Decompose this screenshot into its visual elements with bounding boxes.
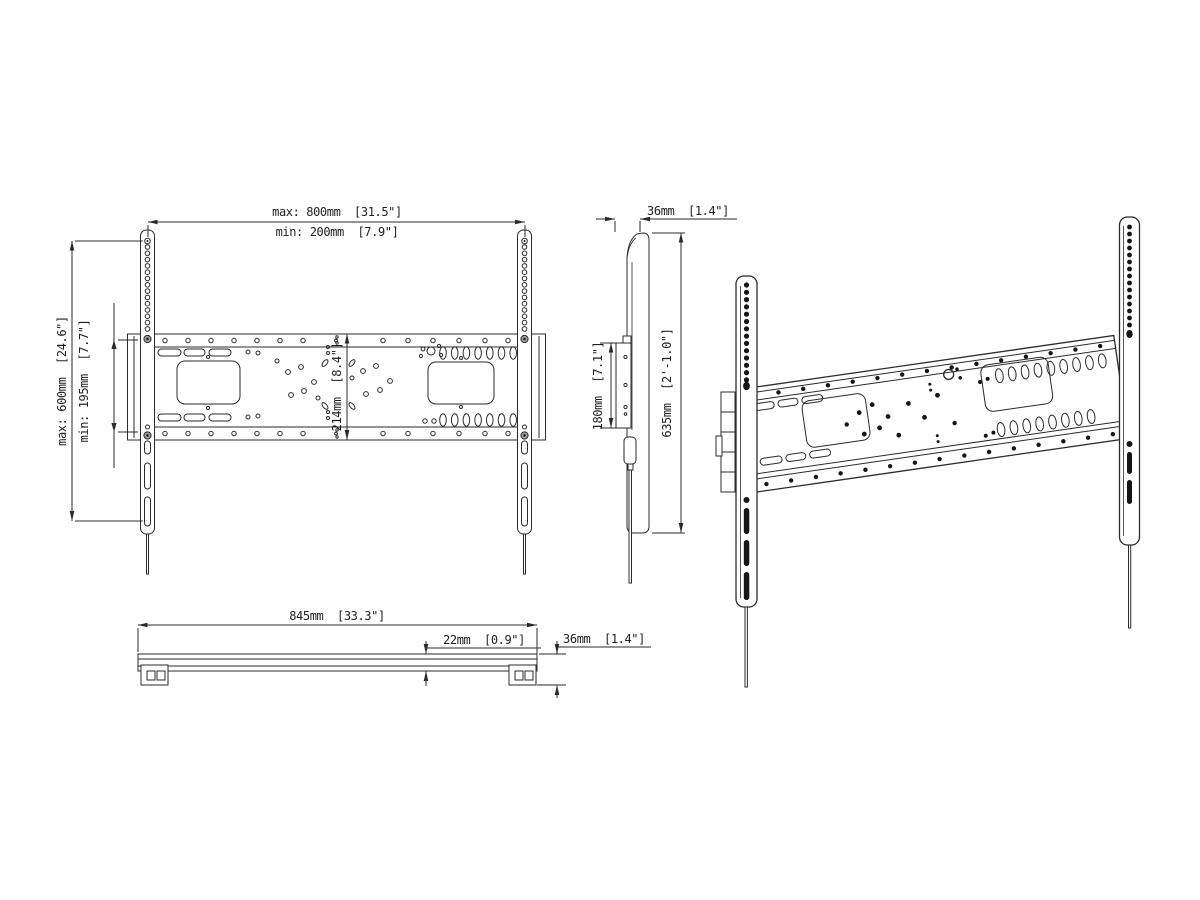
spacer-block-side [624,437,636,464]
dim-total-depth: 36mm [1.4"] [563,632,645,646]
front-view: max: 800mm [31.5"] min: 200mm [7.9"] max… [55,205,546,574]
safety-strap-left-perspective [745,607,747,687]
wall-mount-technical-drawing: max: 800mm [31.5"] min: 200mm [7.9"] max… [0,0,1200,900]
side-view: 36mm [1.4"] 180mm [7.1"] 635mm [2'-1.0"] [591,204,737,583]
safety-strap-right [524,534,526,574]
safety-strap-right-perspective [1129,545,1131,628]
foot-right-bottom [509,665,536,685]
tv-rail-left-perspective [736,276,757,687]
dim-width-max: max: 800mm [31.5"] [272,205,402,219]
dim-width-min: min: 200mm [7.9"] [276,225,399,239]
dim-plate-thickness: 22mm [0.9"] [443,633,525,647]
dim-height-min: min: 195mm [7.7"] [77,320,91,443]
bottom-view: 845mm [33.3"] 22mm [0.9"] 36mm [1.4"] [138,609,651,698]
tv-rail-right-perspective [1120,217,1140,628]
dim-total-height: 635mm [2'-1.0"] [660,328,674,437]
dim-height-max: max: 600mm [24.6"] [55,316,69,446]
side-dimensions: 36mm [1.4"] 180mm [7.1"] 635mm [2'-1.0"] [591,204,737,533]
technical-drawing-page: max: 800mm [31.5"] min: 200mm [7.9"] max… [0,0,1200,900]
wall-plate-perspective [740,335,1129,492]
dim-plate-height: 180mm [7.1"] [591,342,605,431]
wall-plate-bottom [138,654,537,671]
safety-strap-side [629,470,632,583]
safety-strap-left [147,534,149,574]
foot-left-bottom [141,665,168,685]
dim-rail-span: 214mm [8.4"] [330,343,344,432]
dim-bottom-width: 845mm [33.3"] [289,609,385,623]
perspective-view [716,217,1140,687]
hook-bracket-perspective [716,392,735,492]
dim-depth: 36mm [1.4"] [647,204,729,218]
